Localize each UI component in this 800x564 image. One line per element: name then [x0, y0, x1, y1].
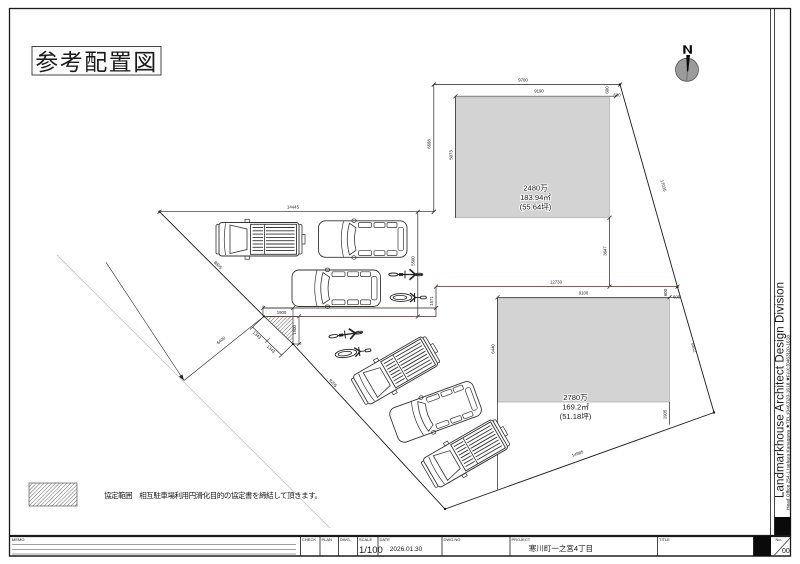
svg-text:9190: 9190: [534, 88, 544, 93]
svg-text:協定範囲 相互駐車場利用円滑化目的の協定書を締結して頂きます: 協定範囲 相互駐車場利用円滑化目的の協定書を締結して頂きます。: [104, 490, 322, 500]
svg-text:Landmarkhouse Architect Design: Landmarkhouse Architect Design Division: [775, 282, 787, 498]
svg-text:6668: 6668: [427, 139, 432, 149]
svg-text:169.2㎡: 169.2㎡: [562, 403, 589, 412]
svg-text:14445: 14445: [287, 205, 300, 210]
svg-text:DWG.: DWG.: [340, 537, 351, 542]
svg-text:6400: 6400: [216, 335, 227, 345]
svg-text:(55.64坪): (55.64坪): [520, 203, 552, 212]
svg-text:MEMO: MEMO: [12, 537, 24, 542]
svg-text:600: 600: [605, 86, 610, 94]
svg-text:5500: 5500: [411, 256, 416, 266]
svg-text:PLAN: PLAN: [322, 537, 333, 542]
svg-text:1571: 1571: [429, 296, 434, 306]
svg-text:5073: 5073: [448, 150, 453, 160]
svg-text:1/100: 1/100: [359, 545, 383, 556]
svg-text:6440: 6440: [490, 344, 495, 354]
svg-text:600: 600: [673, 295, 681, 300]
svg-text:PROJECT: PROJECT: [512, 537, 531, 542]
svg-text:9700: 9700: [518, 78, 528, 83]
svg-text:17035: 17035: [659, 179, 667, 192]
svg-text:DWG.NO: DWG.NO: [444, 537, 461, 542]
svg-text:DATE: DATE: [380, 537, 391, 542]
svg-text:00: 00: [782, 548, 790, 555]
svg-text:SCALE: SCALE: [359, 537, 372, 542]
svg-text:1900: 1900: [292, 325, 297, 335]
svg-text:183.94㎡: 183.94㎡: [520, 193, 551, 202]
svg-text:2480万: 2480万: [523, 184, 548, 193]
svg-text:1900: 1900: [277, 310, 287, 315]
svg-text:2780万: 2780万: [563, 393, 588, 402]
svg-text:14985: 14985: [571, 449, 585, 458]
svg-text:3647: 3647: [602, 246, 607, 256]
svg-text:2026.01.30: 2026.01.30: [390, 546, 423, 553]
svg-text:CHECK: CHECK: [302, 537, 316, 542]
svg-text:寒川町一之宮4丁目: 寒川町一之宮4丁目: [529, 543, 593, 553]
svg-text:TITLE: TITLE: [659, 537, 670, 542]
svg-text:8805: 8805: [213, 260, 224, 271]
svg-text:1905: 1905: [662, 409, 667, 419]
svg-text:9100: 9100: [579, 291, 589, 296]
svg-text:600: 600: [614, 93, 622, 98]
svg-text:(51.18坪): (51.18坪): [560, 412, 592, 421]
svg-text:No.: No.: [776, 537, 782, 542]
svg-text:参考配置図: 参考配置図: [35, 49, 158, 75]
svg-text:1343: 1343: [266, 344, 277, 355]
svg-text:12730: 12730: [550, 280, 563, 285]
svg-text:1343: 1343: [252, 330, 263, 341]
svg-text:600: 600: [663, 288, 668, 296]
svg-text:Head Office 254-1 Isehara Kana: Head Office 254-1 Isehara Kanagawa ★TEL:…: [786, 335, 792, 510]
